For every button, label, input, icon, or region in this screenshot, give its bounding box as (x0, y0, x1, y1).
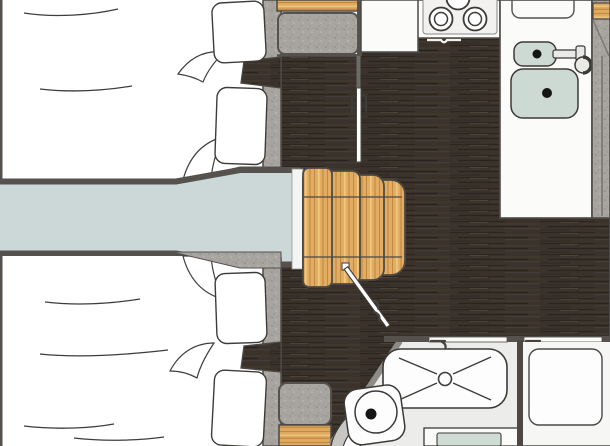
cabin-aft (0, 252, 331, 446)
burner-inner (469, 13, 482, 26)
drain-icon (439, 373, 452, 386)
wooden-steps (303, 168, 405, 287)
mid-cabinet (277, 0, 362, 56)
vanity-basin (437, 433, 501, 446)
wall-panel (592, 0, 610, 218)
seat-cabinet (278, 13, 358, 54)
walkway-floor (0, 172, 292, 263)
drain-icon (533, 50, 542, 59)
outer-wall-left (0, 256, 3, 446)
door-track (357, 56, 361, 88)
step-threshold (292, 169, 303, 269)
floor-notch (241, 342, 281, 372)
wood-counter-corner (593, 3, 610, 19)
cabin-fore (0, 0, 281, 183)
step-1 (303, 168, 332, 287)
partition-wall (517, 340, 523, 446)
floorplan (0, 0, 610, 446)
stove (418, 0, 500, 38)
wood-cabinet-top (277, 0, 358, 11)
drain-icon (542, 88, 552, 98)
drain-icon (366, 409, 377, 420)
counter-left (361, 0, 418, 52)
pillow (215, 272, 267, 344)
pillow (211, 1, 266, 64)
outer-wall-left (0, 0, 3, 183)
wardrobe (523, 342, 610, 446)
door-leaf (357, 88, 362, 162)
pillow (211, 370, 267, 446)
wood-cabinet-top (279, 425, 331, 446)
wardrobe-mat (529, 349, 602, 425)
right-wall (592, 0, 610, 218)
burner-inner (435, 13, 448, 26)
seat-cabinet (279, 383, 331, 425)
floorplan-canvas (0, 0, 610, 446)
pillow (215, 87, 268, 165)
